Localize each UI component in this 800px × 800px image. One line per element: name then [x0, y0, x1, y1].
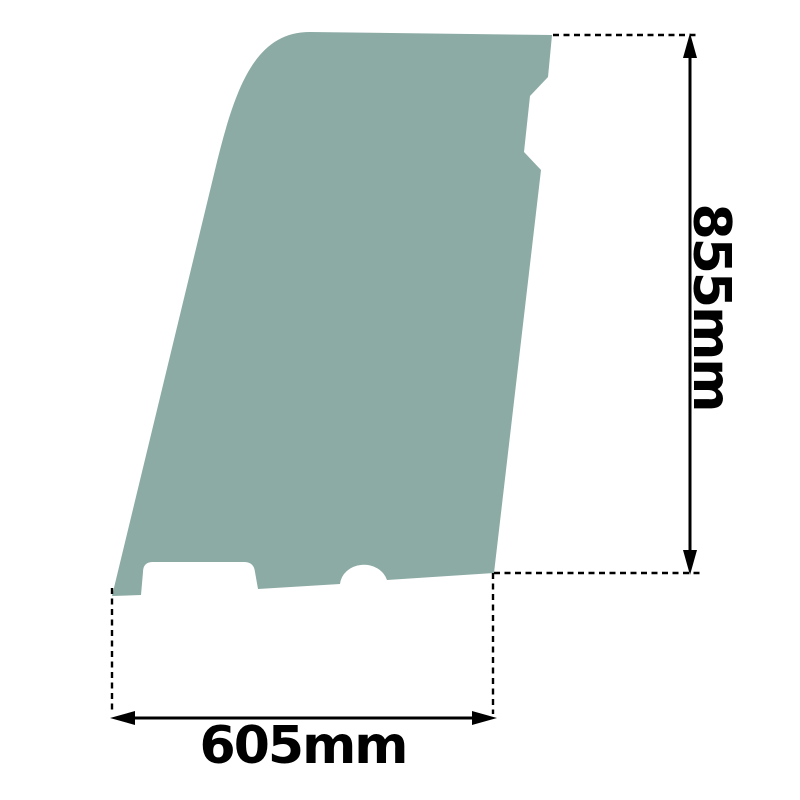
height-dimension-label: 855mm	[681, 204, 741, 411]
dimension-diagram: 855mm 605mm	[0, 0, 800, 800]
width-dimension-label: 605mm	[200, 716, 407, 776]
diagram-canvas: 855mm 605mm	[0, 0, 800, 800]
